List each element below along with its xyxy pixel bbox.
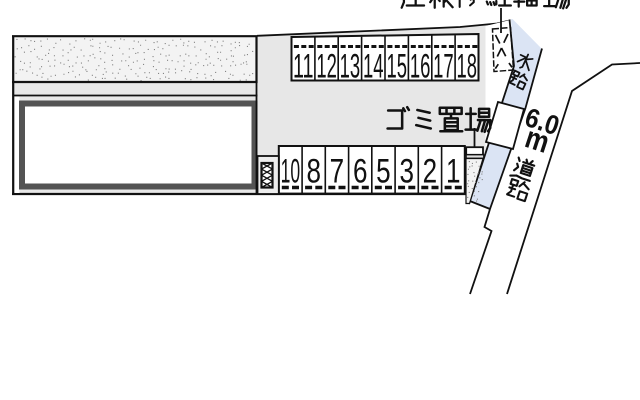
svg-text:3: 3 [399, 153, 414, 191]
svg-text:15: 15 [386, 48, 407, 86]
svg-text:11: 11 [293, 48, 314, 86]
svg-text:10: 10 [281, 153, 301, 191]
svg-text:5: 5 [376, 153, 391, 191]
svg-text:6: 6 [353, 153, 368, 191]
svg-text:2: 2 [423, 153, 438, 191]
svg-text:14: 14 [363, 48, 384, 86]
svg-text:7: 7 [330, 153, 345, 191]
svg-text:12: 12 [316, 48, 337, 86]
svg-text:8: 8 [306, 153, 321, 191]
svg-text:1: 1 [446, 153, 461, 191]
svg-text:16: 16 [410, 48, 431, 86]
svg-text:17: 17 [433, 48, 454, 86]
svg-text:18: 18 [457, 48, 478, 86]
svg-text:13: 13 [340, 48, 361, 86]
